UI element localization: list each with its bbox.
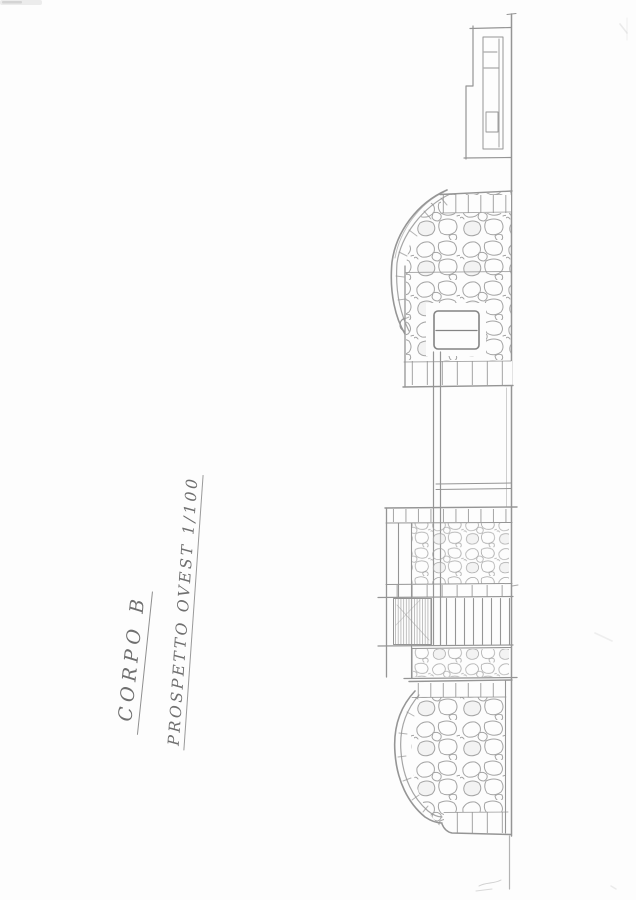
upper-masonry-block: [391, 190, 515, 388]
scan-smudges: [0, 0, 627, 891]
lower-masonry-block: [395, 680, 512, 837]
elevation-sketch: [0, 0, 636, 900]
ground-line: [507, 14, 516, 890]
chimney-detail: [464, 26, 511, 159]
masonry-band: [404, 648, 517, 679]
scanned-sketch-page: CORPO B PROSPETTO OVEST 1/100: [0, 0, 636, 900]
plain-wall-section: [434, 352, 512, 645]
gate-slats: [378, 599, 513, 647]
pencil-drawing: [0, 0, 627, 891]
